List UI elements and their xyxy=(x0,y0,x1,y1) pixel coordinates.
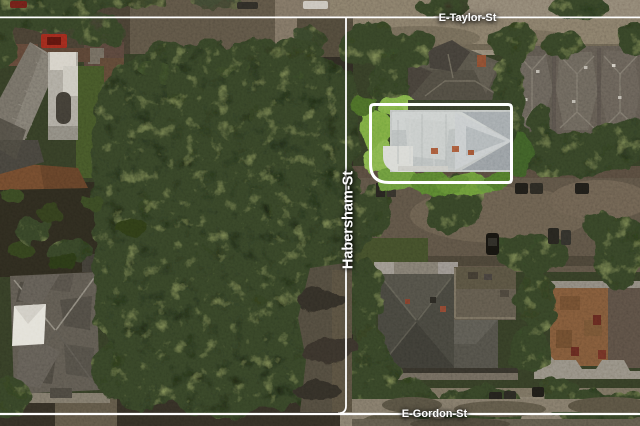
svg-text:Habersham-St: Habersham-St xyxy=(341,171,357,269)
svg-text:E-Gordon-St: E-Gordon-St xyxy=(402,408,468,420)
svg-text:E-Taylor-St: E-Taylor-St xyxy=(439,12,497,24)
